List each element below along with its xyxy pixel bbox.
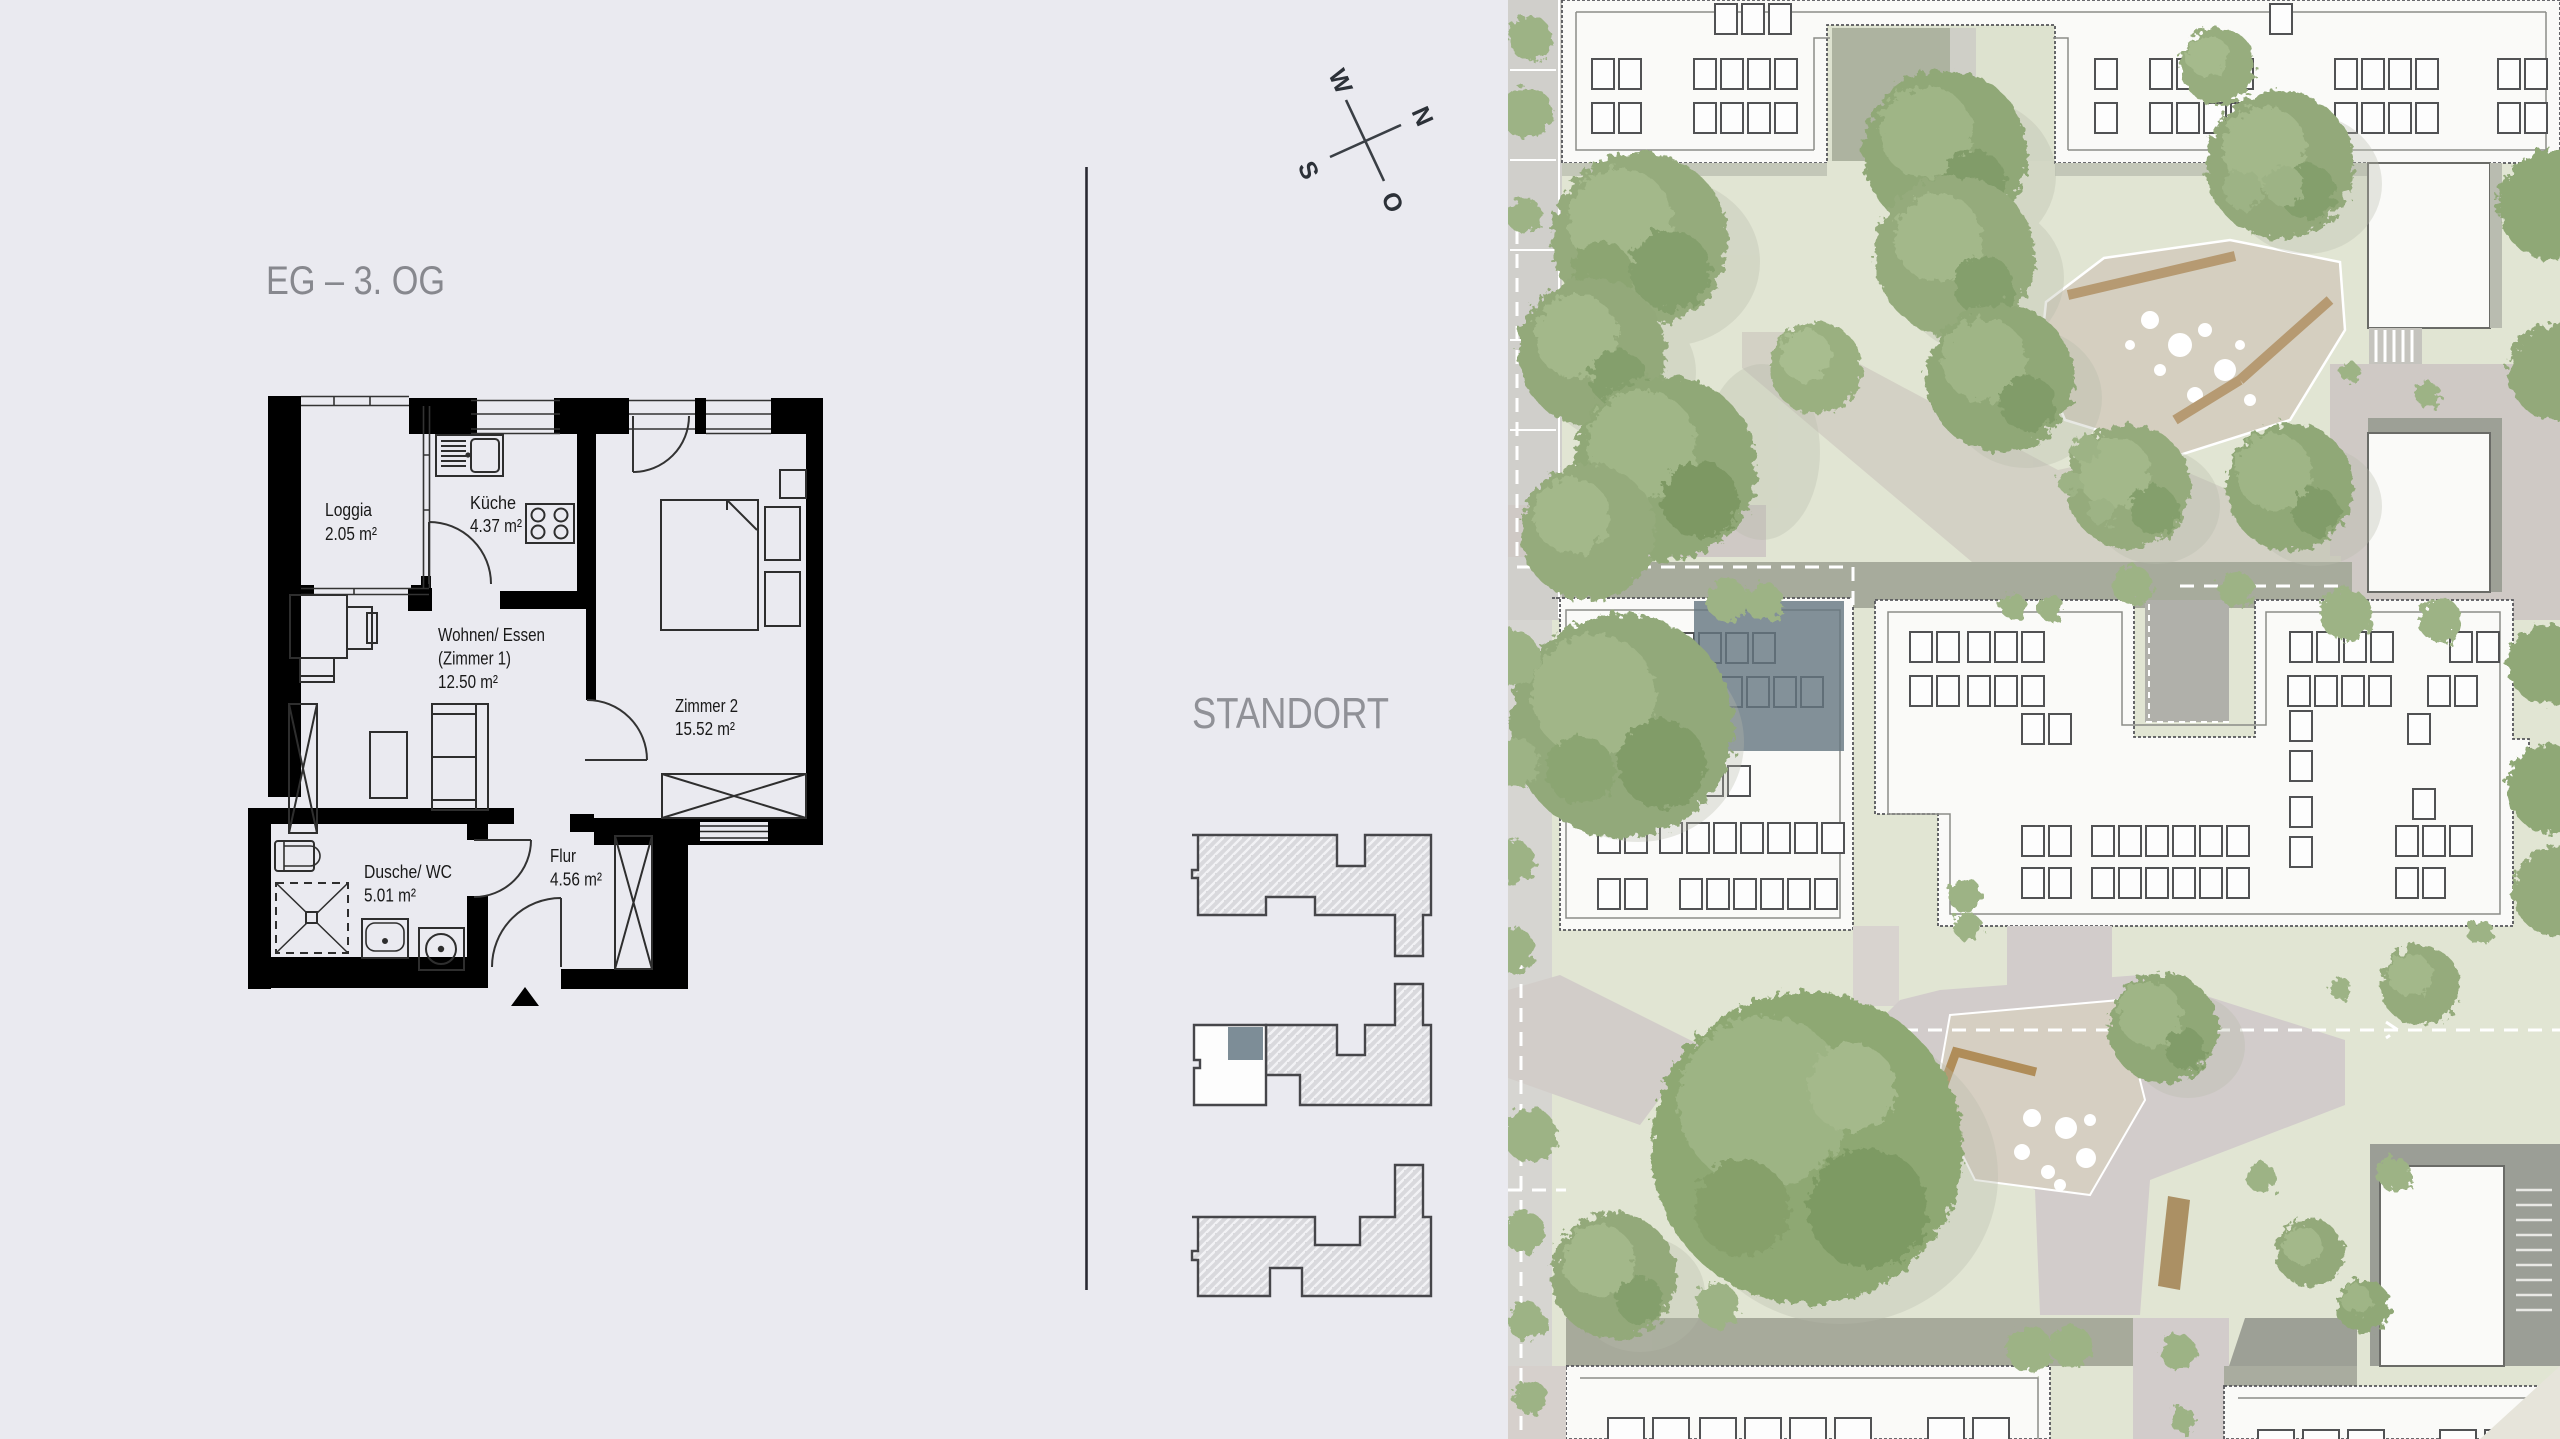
svg-text:2.05 m²: 2.05 m² (325, 523, 377, 544)
svg-text:(Zimmer 1): (Zimmer 1) (438, 648, 511, 669)
svg-text:Wohnen/ Essen: Wohnen/ Essen (438, 624, 545, 645)
svg-text:5.01 m²: 5.01 m² (364, 885, 416, 906)
svg-text:Loggia: Loggia (325, 499, 373, 520)
svg-text:Küche: Küche (470, 492, 516, 513)
svg-text:O: O (1375, 188, 1408, 217)
svg-text:W: W (1322, 65, 1357, 98)
svg-text:S: S (1292, 157, 1324, 184)
svg-text:EG – 3. OG: EG – 3. OG (266, 259, 445, 303)
svg-text:Flur: Flur (550, 845, 576, 866)
svg-text:N: N (1406, 102, 1439, 130)
svg-text:12.50 m²: 12.50 m² (438, 671, 498, 692)
svg-text:4.37 m²: 4.37 m² (470, 515, 522, 536)
svg-text:Dusche/ WC: Dusche/ WC (364, 861, 452, 882)
svg-text:STANDORT: STANDORT (1192, 689, 1389, 738)
svg-text:Zimmer 2: Zimmer 2 (675, 695, 738, 716)
svg-text:15.52 m²: 15.52 m² (675, 718, 735, 739)
svg-text:4.56 m²: 4.56 m² (550, 869, 602, 890)
